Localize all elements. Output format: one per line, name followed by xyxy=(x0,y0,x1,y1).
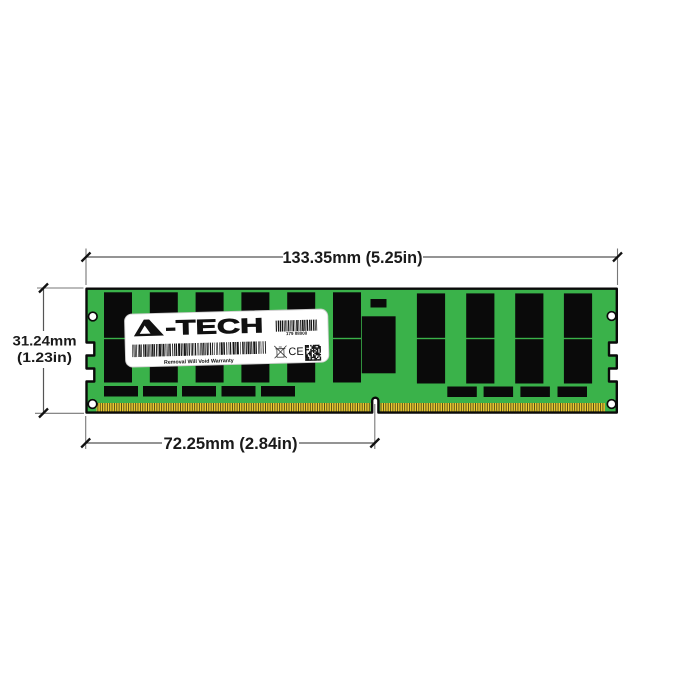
svg-text:31.24mm: 31.24mm xyxy=(13,334,77,349)
svg-text:72.25mm (2.84in): 72.25mm (2.84in) xyxy=(164,434,298,453)
svg-text:133.35mm (5.25in): 133.35mm (5.25in) xyxy=(283,248,423,267)
svg-text:179 88000: 179 88000 xyxy=(286,331,308,337)
svg-text:CE: CE xyxy=(288,346,304,358)
svg-text:(1.23in): (1.23in) xyxy=(17,350,72,365)
svg-text:-TECH: -TECH xyxy=(165,314,264,340)
